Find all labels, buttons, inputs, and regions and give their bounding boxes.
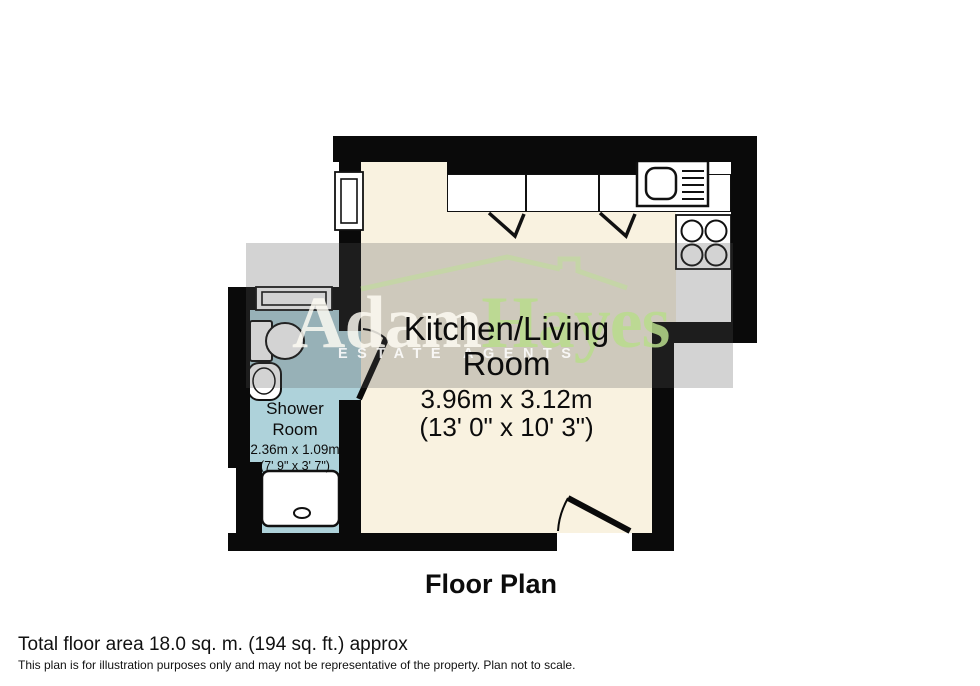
kitchen-dims-imperial: (13' 0" x 10' 3"): [361, 413, 652, 441]
shower-label: Shower Room 2.36m x 1.09m (7' 9" x 3' 7"…: [249, 398, 341, 474]
page-title: Floor Plan: [361, 569, 621, 600]
kitchen-dims-metric: 3.96m x 3.12m: [361, 386, 652, 413]
shower-name-line2: Room: [249, 419, 341, 440]
door-swing-entry-icon: [558, 498, 630, 531]
shower-name-line1: Shower: [249, 398, 341, 419]
total-floor-area: Total floor area 18.0 sq. m. (194 sq. ft…: [18, 634, 408, 656]
shower-dims-imperial: (7' 9" x 3' 7"): [249, 458, 341, 474]
floor-plan-canvas: AdamHayes ESTATE AGENTS Kitchen/Living R…: [0, 0, 980, 686]
kitchen-name-line2: Room: [361, 346, 652, 381]
disclaimer: This plan is for illustration purposes o…: [18, 658, 575, 672]
window-kitchen-icon: [335, 172, 363, 230]
kitchen-label: Kitchen/Living Room 3.96m x 3.12m (13' 0…: [361, 311, 652, 441]
kitchen-name-line1: Kitchen/Living: [361, 311, 652, 346]
shower-dims-metric: 2.36m x 1.09m: [249, 442, 341, 458]
